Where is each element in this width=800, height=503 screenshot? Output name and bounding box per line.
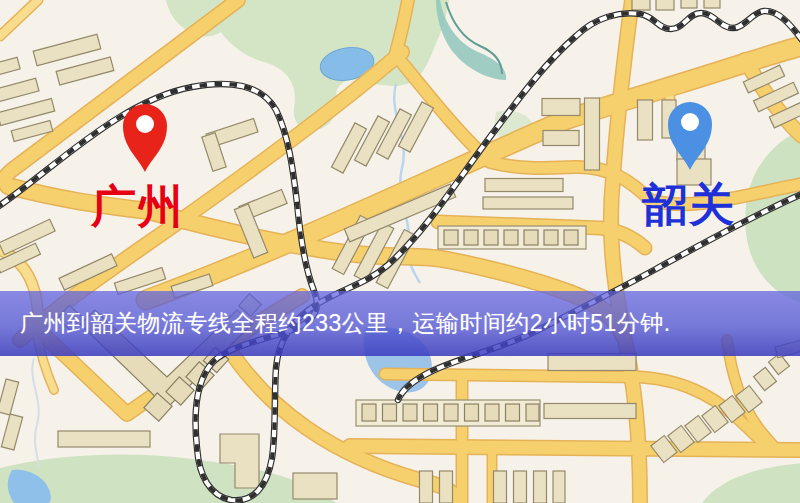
map-screenshot: 广州 韶关 广州到韶关物流专线全程约233公里，运输时间约2小时51分钟. <box>0 0 800 503</box>
destination-city-label: 韶关 <box>642 182 736 227</box>
map-image <box>0 0 800 503</box>
route-info-banner: 广州到韶关物流专线全程约233公里，运输时间约2小时51分钟. <box>0 291 800 356</box>
origin-city-label: 广州 <box>91 184 185 229</box>
route-info-text: 广州到韶关物流专线全程约233公里，运输时间约2小时51分钟. <box>0 308 671 339</box>
